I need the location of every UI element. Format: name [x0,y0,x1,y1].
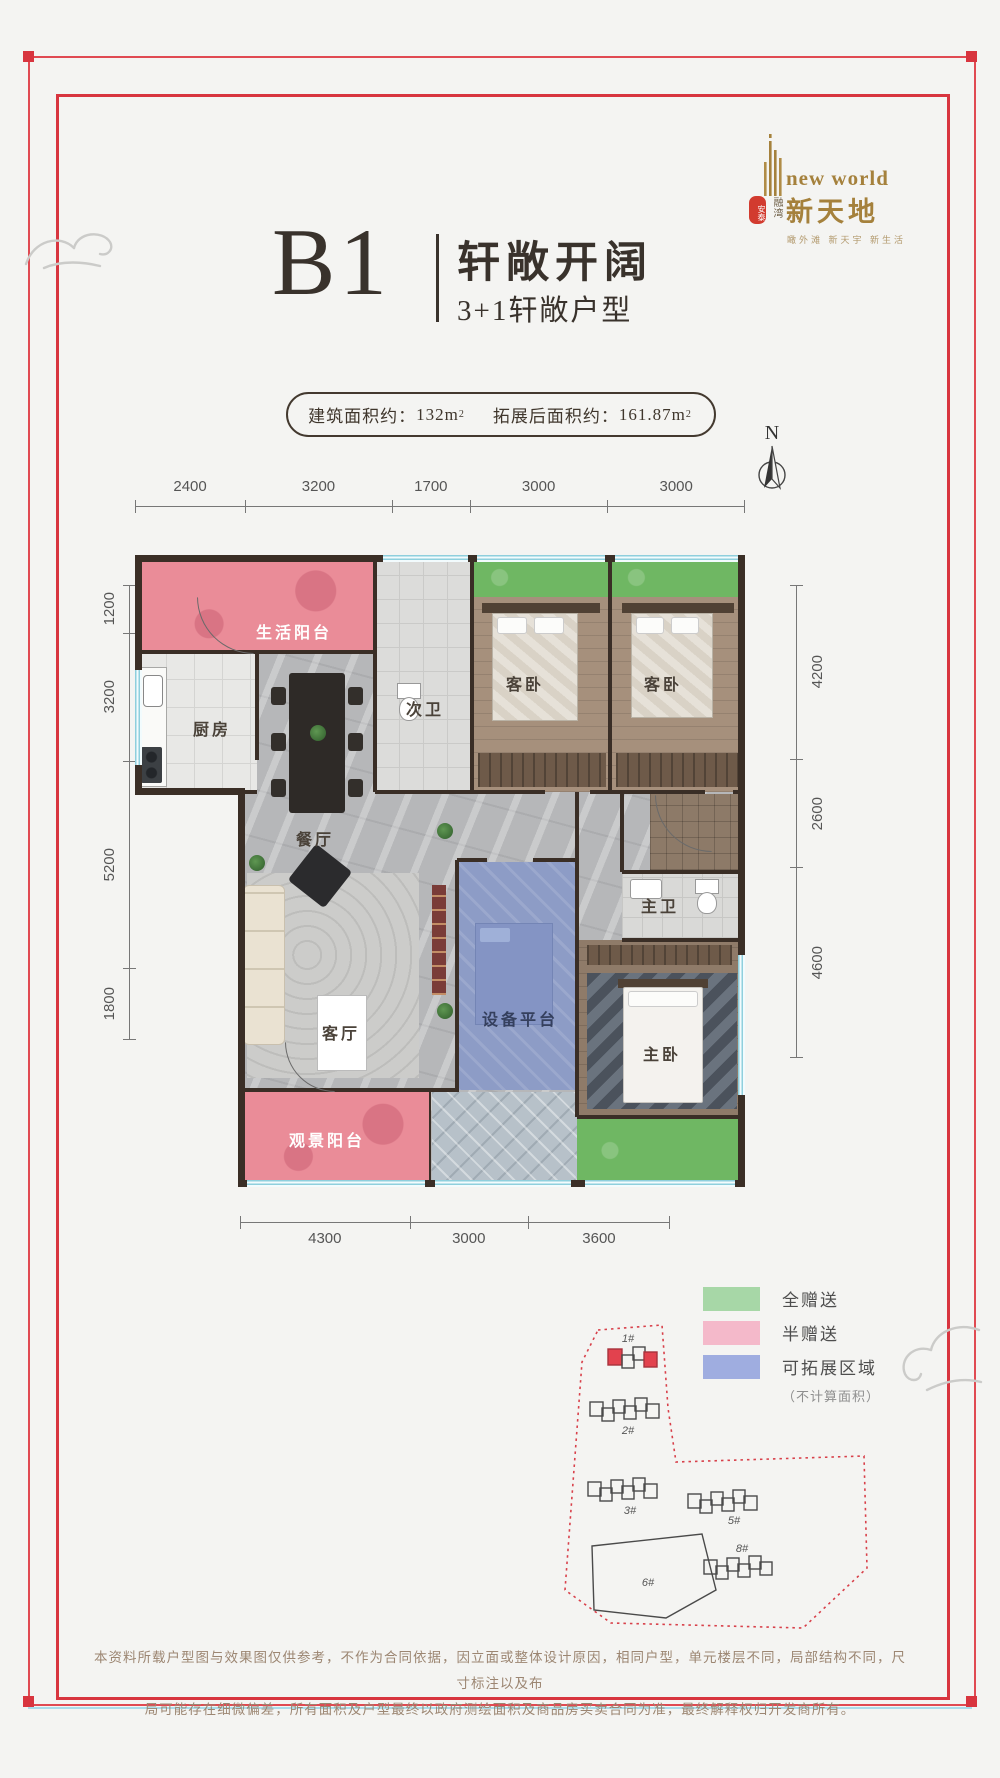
building-label: 5# [728,1515,741,1527]
logo-seal: 安泰 [749,196,766,224]
dim-left-2: 3200 [98,633,134,761]
plan-subtitle: 3+1轩敞户型 [457,287,632,329]
window [585,1180,735,1187]
window [383,555,468,562]
label-guest-bath: 次卫 [406,696,444,720]
label-equipment: 设备平台 [482,1006,558,1030]
dim-right-3: 4600 [792,867,828,1058]
logo-brand-cn: 新天地 [786,190,879,229]
built-area-value: 132m [416,405,459,425]
plant [249,855,265,871]
built-area-label: 建筑面积约： [308,402,416,427]
building-label: 1# [622,1333,635,1345]
window [477,555,605,562]
dim-bottom-3: 3600 [528,1214,670,1247]
legend-swatch-green [703,1287,760,1311]
area-badge: 建筑面积约：132m2拓展后面积约：161.87m2 [286,392,716,437]
dim-bottom-2: 3000 [410,1214,528,1247]
disclaimer-line-2: 局可能存在细微偏差，所有面积及户型最终以政府测绘面积及商品房买卖合同为准，最终解… [88,1697,912,1723]
dim-top-5: 3000 [607,478,745,515]
dim-top-2: 3200 [245,478,392,515]
frame-corner-ornament [23,51,34,62]
dim-top-4: 3000 [470,478,608,515]
window [247,1180,425,1187]
walls [135,555,745,1187]
disclaimer: 本资料所载户型图与效果图仅供参考，不作为合同依据，因立面或整体设计原因，相同户型… [88,1645,912,1723]
dimension-column-right: 4200 2600 4600 [792,585,828,1058]
window [738,955,745,1095]
compass-icon [752,444,792,494]
plant [310,725,326,741]
dimension-row-top: 2400 3200 1700 3000 3000 [135,478,745,515]
dim-left-1: 1200 [98,585,134,633]
building-8 [704,1556,772,1579]
building-label: 6# [642,1577,655,1589]
frame-corner-ornament [966,1696,977,1707]
label-living: 客厅 [322,1020,360,1044]
plan-code: B1 [272,215,391,310]
legend-item-full-gift: 全赠送 [703,1286,839,1311]
disclaimer-line-1: 本资料所载户型图与效果图仅供参考，不作为合同依据，因立面或整体设计原因，相同户型… [88,1645,912,1697]
site-boundary [565,1325,867,1628]
dimension-column-left: 1200 3200 5200 1800 [98,585,134,1040]
floor-plan: 生活阳台 厨房 餐厅 次卫 客卧 客卧 主卫 客厅 设备平台 主卧 观景阳台 [135,555,745,1187]
building-label: 3# [624,1505,637,1517]
plan-headline: 轩敞开阔 [457,228,653,290]
dim-right-1: 4200 [792,585,828,759]
label-kitchen: 厨房 [193,716,231,740]
expanded-area-label: 拓展后面积约： [493,402,619,427]
label-bedroom-a: 客卧 [506,671,544,695]
dim-right-2: 2600 [792,759,828,867]
logo-brand-en: new world [786,166,889,191]
site-plan: 1# 2# 3# 5# 6# 8# [470,1322,870,1634]
compass-north-label: N [752,422,792,445]
dim-top-1: 2400 [135,478,245,515]
building-5 [688,1490,757,1513]
cloud-ornament-top-left [22,220,124,278]
building-label: 2# [621,1425,635,1437]
label-dining: 餐厅 [296,826,334,850]
label-view-balcony: 观景阳台 [289,1127,365,1151]
legend-label: 全赠送 [782,1286,839,1311]
building-2 [590,1398,659,1421]
logo-tower-icon [755,134,789,196]
dim-left-4: 1800 [98,968,134,1040]
logo-tagline: 瞰外滩 新天宇 新生活 [787,233,906,246]
logo-seal-side-text: 融湾 [769,197,784,219]
dim-top-3: 1700 [392,478,470,515]
plant [437,823,453,839]
building-label: 8# [736,1543,749,1555]
label-master: 主卧 [643,1041,681,1065]
cloud-ornament-right [893,1316,985,1402]
title-divider [436,234,439,322]
dim-left-3: 5200 [98,761,134,969]
window [135,670,142,765]
dim-bottom-1: 4300 [240,1214,410,1247]
expanded-area-sup: 2 [686,409,692,420]
dimension-row-bottom: 4300 3000 3600 [240,1214,670,1247]
frame-corner-ornament [966,51,977,62]
building-6 [592,1534,716,1618]
expanded-area-value: 161.87m [619,405,686,425]
built-area-sup: 2 [459,409,465,420]
label-life-balcony: 生活阳台 [256,619,332,643]
frame-corner-ornament [23,1696,34,1707]
plant [437,1003,453,1019]
label-bedroom-b: 客卧 [644,671,682,695]
label-master-bath: 主卫 [641,893,679,917]
building-1 [608,1347,657,1368]
building-3 [588,1478,657,1501]
window [615,555,738,562]
window [435,1180,571,1187]
